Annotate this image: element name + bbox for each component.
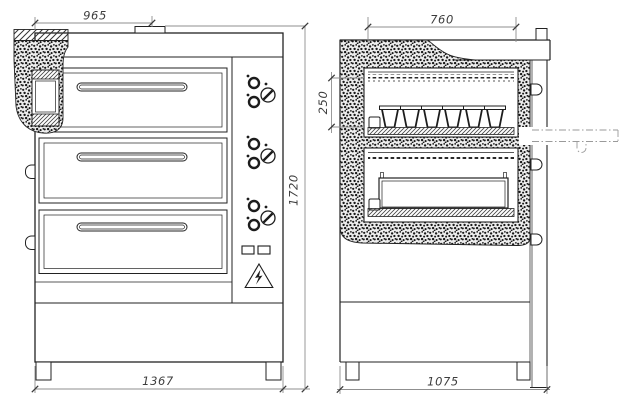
- top-vent: [135, 27, 165, 34]
- pilot-dot: [247, 94, 250, 97]
- dimension-front-height: 1720: [287, 23, 309, 392]
- oven-technical-drawing: 965 1720 1367: [0, 0, 624, 406]
- door-handle-profile: [531, 234, 542, 245]
- upper-chamber: [364, 68, 518, 137]
- side-lower-body: [341, 246, 529, 301]
- drawing-canvas: 965 1720 1367: [0, 0, 624, 406]
- heating-element-row: [368, 75, 514, 79]
- door-handle-profile: [531, 84, 542, 95]
- side-section-view: 760 250 1075: [316, 13, 618, 395]
- pilot-dot: [247, 198, 250, 201]
- dim-label-250: 250: [316, 91, 330, 115]
- door-handle-1: [77, 83, 187, 91]
- front-left-foot: [36, 362, 51, 380]
- deep-baking-tray: [379, 173, 508, 209]
- pilot-dot: [265, 83, 268, 86]
- side-latch-tab: [26, 236, 36, 250]
- front-right-foot: [266, 362, 281, 380]
- front-view: 965 1720 1367: [14, 9, 310, 394]
- pilot-dot: [247, 217, 250, 220]
- dim-label-1075: 1075: [427, 375, 459, 389]
- pilot-dot: [247, 155, 250, 158]
- door-handle-profile: [531, 159, 542, 170]
- side-rear-foot: [346, 362, 359, 380]
- tray-pull-hook: [577, 142, 586, 153]
- dim-label-1367: 1367: [142, 374, 174, 388]
- pilot-dot: [247, 75, 250, 78]
- baking-deck: [368, 128, 514, 135]
- dim-label-965: 965: [83, 9, 107, 23]
- dimension-side-top-depth: 760: [365, 13, 519, 43]
- baking-deck: [368, 209, 514, 217]
- pilot-dot: [265, 144, 268, 147]
- side-front-foot: [517, 362, 530, 380]
- deck-door-2: [39, 138, 227, 203]
- insulation-cutaway: [14, 30, 68, 134]
- dim-label-1720: 1720: [287, 174, 301, 206]
- side-vent-tab: [536, 29, 547, 41]
- lower-chamber: [364, 148, 518, 222]
- dim-label-760: 760: [430, 13, 454, 27]
- pilot-dot: [247, 136, 250, 139]
- pilot-dot: [265, 206, 268, 209]
- deck-stop-block: [369, 117, 380, 128]
- heating-element-row: [368, 155, 514, 159]
- door-handle-2: [77, 153, 187, 161]
- deck-door-1: [39, 68, 227, 132]
- dimension-front-top-width: 965: [32, 9, 305, 31]
- section-hatch-band: [14, 30, 68, 41]
- door-handle-3: [77, 223, 187, 231]
- side-latch-tab: [26, 165, 36, 179]
- deck-door-3: [39, 210, 227, 274]
